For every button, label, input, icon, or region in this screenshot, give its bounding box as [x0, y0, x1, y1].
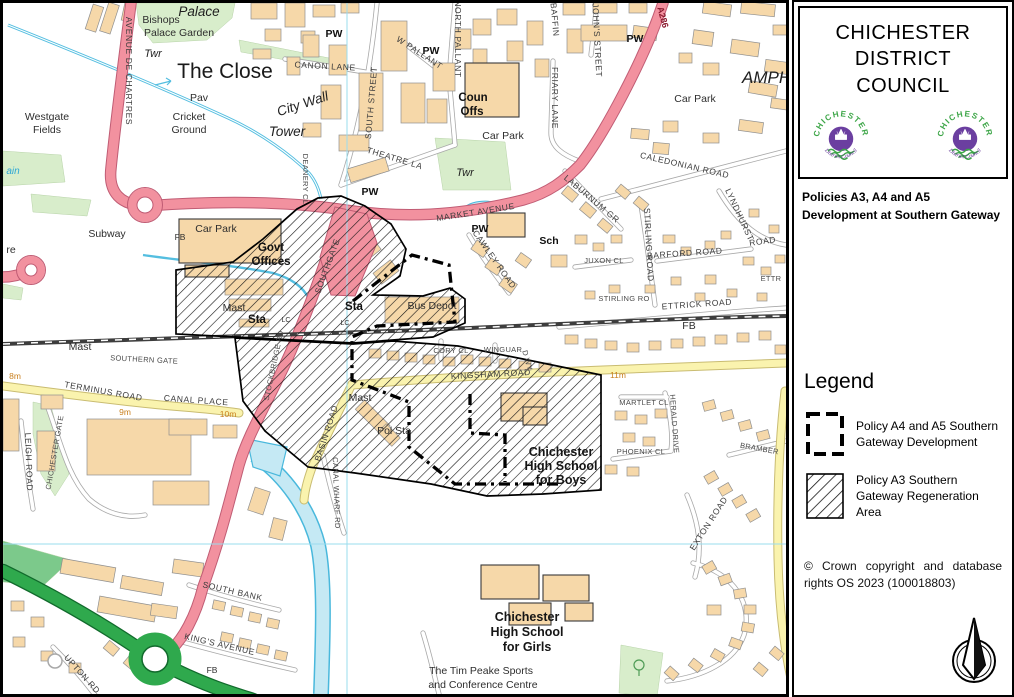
legend-heading: Legend [804, 370, 1008, 394]
map-label: and Conference Centre [428, 679, 537, 691]
map-label: High School [525, 459, 598, 473]
map-label: Pol Sta [377, 425, 411, 437]
dashed-outline-swatch [804, 410, 846, 458]
map-label: Pav [190, 92, 209, 104]
policies-caption: Policies A3, A4 and A5 Development at So… [802, 188, 1004, 224]
map-label: The Tim Peake Sports [429, 665, 533, 677]
map-label: Sta [345, 301, 364, 313]
map-label: ain [6, 166, 20, 177]
map-label: 9m [119, 407, 131, 417]
map-label: PW [362, 186, 379, 198]
map-label: Car Park [195, 223, 237, 235]
map-label: for Boys [536, 473, 587, 487]
map-label: MARTLET CL [619, 398, 668, 407]
map-label: for Girls [503, 640, 552, 654]
map-label: FRIARY LANE [550, 67, 560, 129]
map-label: DEANERY CL [301, 154, 310, 205]
map-label: Cricket [173, 111, 206, 123]
map-label: Tower [269, 124, 306, 139]
council-title: CHICHESTER DISTRICT COUNCIL [823, 20, 983, 99]
map-label: CORY CL [433, 346, 468, 355]
map-label: CANAL WHARF RD [331, 457, 342, 529]
map-label: Govt [258, 242, 284, 254]
map-label: Sch [539, 235, 558, 247]
map-label: Ground [171, 124, 206, 136]
legend-item-a4-a5: Policy A4 and A5 Southern Gateway Develo… [804, 410, 1008, 458]
legend: Legend Policy A4 and A5 Southern Gateway… [804, 370, 1008, 535]
council-logo-icon [934, 107, 996, 169]
map-label: AMPHITHEATRE [741, 68, 786, 87]
map-label: Palace [178, 4, 219, 19]
map-label: PHOENIX CL [617, 447, 665, 456]
map-label: PW [627, 33, 644, 45]
os-map: PalaceBishopsPalace GardenThe CloseTwrCi… [3, 3, 786, 694]
side-panel: CHICHESTER DISTRICT COUNCIL CHICHESTER [792, 0, 1014, 697]
map-label: 11m [610, 370, 626, 380]
map-label: LC [282, 317, 291, 324]
map-label: Twr [144, 48, 163, 60]
map-label: PW [326, 28, 343, 40]
map-label: UPTON RD [62, 652, 102, 694]
map-label: Bus Depot [407, 300, 456, 312]
map-label: Offs [461, 106, 484, 118]
map-label: SOUTHERN GATE [110, 353, 178, 366]
map-label: Chichester [529, 445, 594, 459]
map-label: 8m [9, 371, 21, 381]
map-region: PalaceBishopsPalace GardenThe CloseTwrCi… [0, 0, 789, 697]
map-label: FB [175, 232, 186, 242]
map-label: Mast [69, 341, 92, 353]
map-label: CANON LANE [294, 59, 356, 72]
legend-label: Policy A3 Southern Gateway Regeneration … [856, 472, 1006, 521]
map-label: ETTR [761, 274, 782, 283]
map-label: Mast [349, 392, 372, 404]
council-logo-icon: CHICHESTER District Council [810, 107, 872, 169]
map-label: Car Park [674, 93, 716, 105]
map-label: Twr [456, 167, 475, 179]
page: PalaceBishopsPalace GardenThe CloseTwrCi… [0, 0, 1014, 697]
map-label: Bishops [142, 14, 179, 26]
map-label: ETTRICK ROAD [661, 297, 732, 312]
copyright-note: © Crown copyright and database rights OS… [804, 558, 1002, 592]
map-label: STIRLING ROAD [642, 208, 656, 282]
council-header: CHICHESTER DISTRICT COUNCIL CHICHESTER [798, 6, 1008, 179]
map-label: Westgate [25, 111, 69, 123]
girls-school-building [481, 565, 539, 599]
map-label: WINGUAR [484, 345, 523, 354]
map-label: Offices [252, 256, 291, 268]
map-label: FB [682, 320, 695, 332]
map-label: NORTH PALLANT [453, 3, 463, 78]
map-label: 10m [220, 409, 237, 419]
logo-row: CHICHESTER District Council [804, 99, 1002, 171]
map-label: Sta [248, 314, 267, 326]
map-label: BAFFIN [549, 3, 562, 37]
map-label: Car Park [482, 130, 524, 142]
legend-item-a3: Policy A3 Southern Gateway Regeneration … [804, 472, 1008, 521]
map-label: JUXON CL [584, 256, 624, 265]
map-label: Coun [458, 92, 487, 104]
green-roundabout [134, 638, 176, 680]
map-label: The Close [177, 60, 273, 83]
school-building [487, 213, 525, 237]
map-label: LC [341, 320, 350, 327]
map-label: High School [491, 625, 564, 639]
map-label: Palace Garden [144, 27, 214, 39]
map-label: STIRLING RO [598, 294, 649, 303]
legend-label: Policy A4 and A5 Southern Gateway Develo… [856, 418, 1006, 450]
map-label: Subway [88, 228, 126, 240]
map-label: Fields [33, 124, 61, 136]
map-label: Mast [223, 302, 246, 314]
map-label: AVENUE DE CHARTRES [124, 17, 134, 125]
map-label: Chichester [495, 610, 560, 624]
map-label: re [6, 244, 15, 256]
map-label: FB [207, 665, 218, 675]
hatch-swatch [804, 472, 846, 520]
map-label: LEIGH ROAD [23, 433, 35, 492]
north-arrow-icon [944, 615, 1004, 689]
